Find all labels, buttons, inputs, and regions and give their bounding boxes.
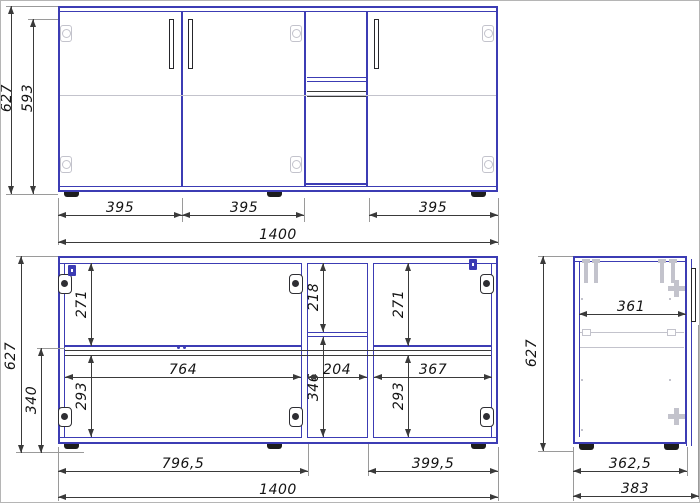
pilot-hole-dot (581, 429, 583, 431)
pilot-hole-dot (581, 298, 583, 300)
extension-line (687, 447, 688, 476)
dim-side-overall-height: 627 (525, 339, 539, 367)
screw-icon (660, 259, 664, 283)
screw-icon (584, 259, 588, 283)
hinge-side-icon (668, 408, 685, 425)
pilot-hole-dot (581, 379, 583, 381)
side-wall-line (579, 261, 580, 437)
hinge-side-icon (668, 280, 685, 297)
dim-side-overall-depth: 383 (621, 482, 649, 496)
screw-icon (594, 259, 598, 283)
foot (664, 444, 679, 450)
side-view: 361 627 362,5 383 (1, 1, 699, 502)
shelf-side-line (580, 347, 684, 348)
extension-line (538, 451, 573, 452)
door-handle (691, 268, 696, 322)
extension-line (698, 325, 699, 499)
shelf-support-icon (582, 329, 591, 336)
dim-line (543, 256, 544, 451)
pilot-hole-dot (669, 298, 671, 300)
pilot-hole-dot (669, 379, 671, 381)
shelf-support-icon (667, 329, 676, 336)
technical-drawing-canvas: 627 593 395 395 395 1400 (0, 0, 700, 503)
dim-side-body-depth: 362,5 (609, 457, 652, 471)
foot (579, 444, 594, 450)
dim-side-inner-depth: 361 (617, 300, 645, 314)
